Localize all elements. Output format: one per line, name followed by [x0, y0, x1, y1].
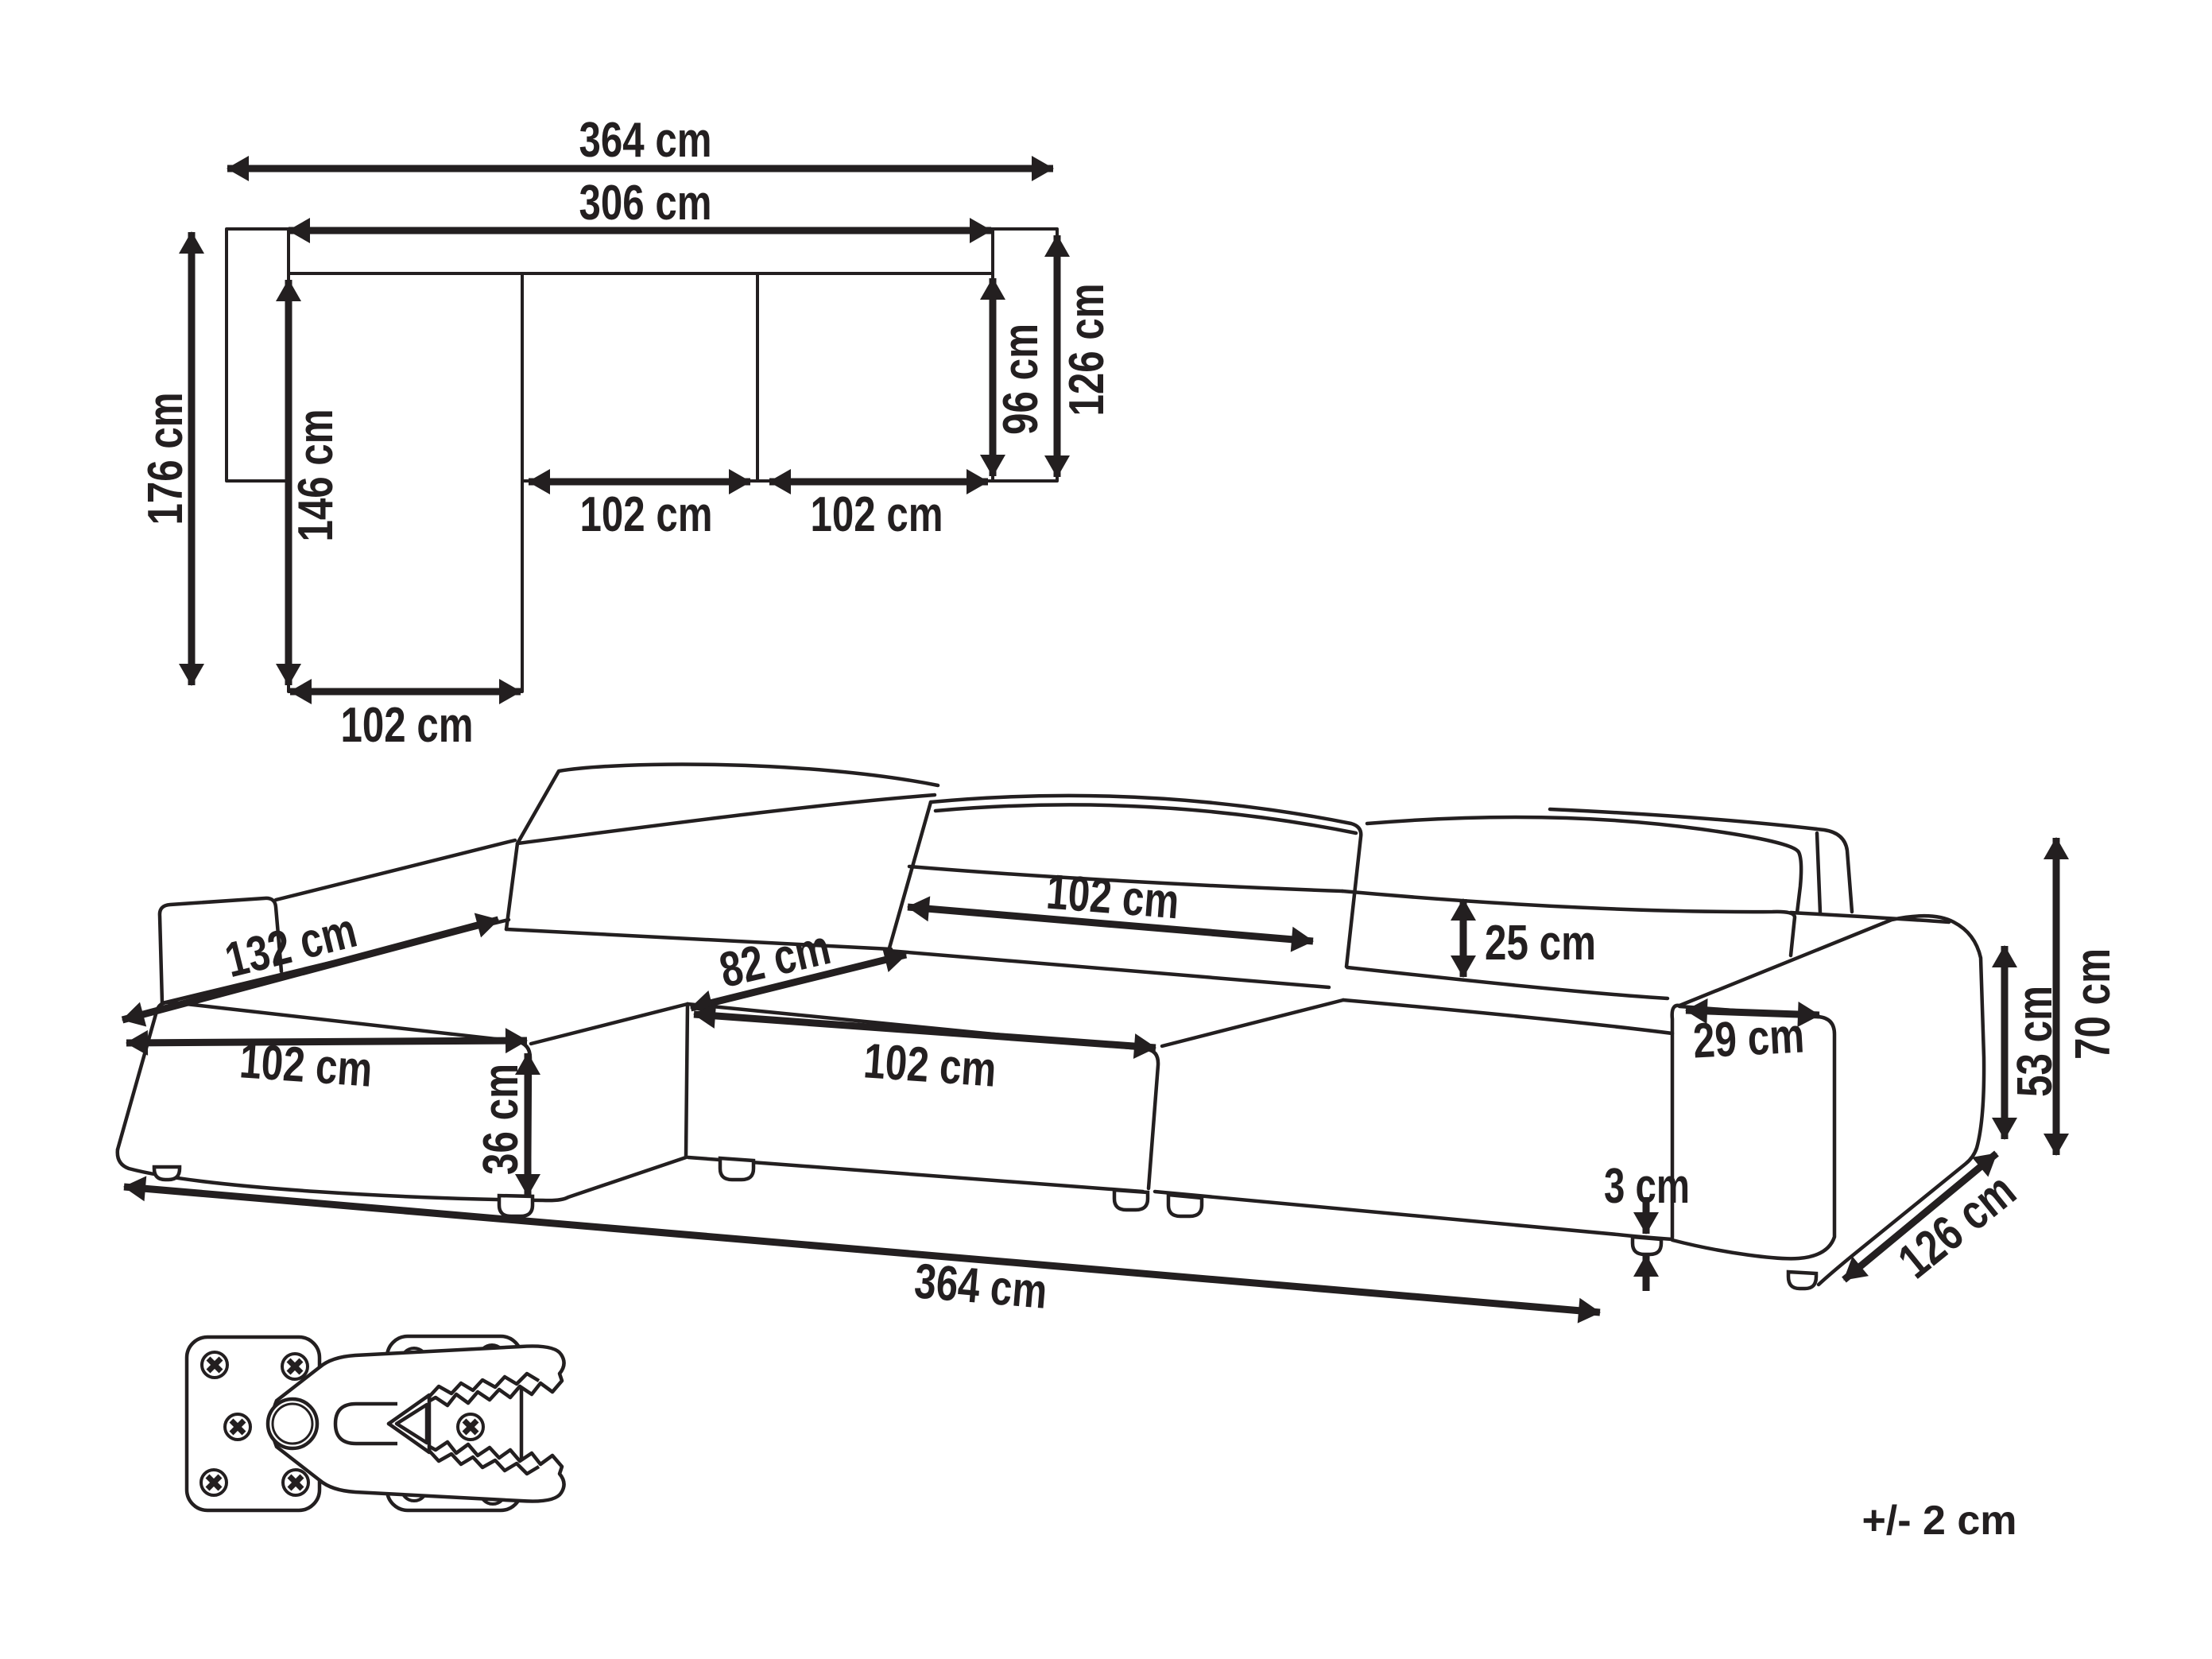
- svg-text:126 cm: 126 cm: [1060, 284, 1114, 417]
- svg-text:3 cm: 3 cm: [1604, 1159, 1690, 1214]
- svg-text:176 cm: 176 cm: [138, 393, 193, 525]
- svg-text:102 cm: 102 cm: [862, 1033, 998, 1097]
- svg-text:306 cm: 306 cm: [579, 176, 712, 231]
- svg-text:70 cm: 70 cm: [2066, 948, 2121, 1060]
- svg-text:364 cm: 364 cm: [912, 1254, 1049, 1320]
- svg-text:102 cm: 102 cm: [1044, 865, 1181, 930]
- svg-text:102 cm: 102 cm: [238, 1033, 374, 1097]
- svg-text:82 cm: 82 cm: [715, 920, 835, 998]
- svg-text:102 cm: 102 cm: [341, 698, 474, 753]
- svg-text:96 cm: 96 cm: [994, 324, 1048, 435]
- svg-text:25 cm: 25 cm: [1485, 916, 1596, 971]
- svg-text:53 cm: 53 cm: [2008, 986, 2063, 1097]
- svg-text:102 cm: 102 cm: [580, 487, 713, 542]
- svg-text:146 cm: 146 cm: [289, 409, 343, 542]
- svg-text:102 cm: 102 cm: [811, 487, 943, 542]
- svg-text:29 cm: 29 cm: [1691, 1008, 1805, 1068]
- svg-text:36 cm: 36 cm: [474, 1064, 529, 1175]
- svg-text:364 cm: 364 cm: [579, 113, 712, 168]
- svg-text:+/- 2 cm: +/- 2 cm: [1861, 1498, 2016, 1544]
